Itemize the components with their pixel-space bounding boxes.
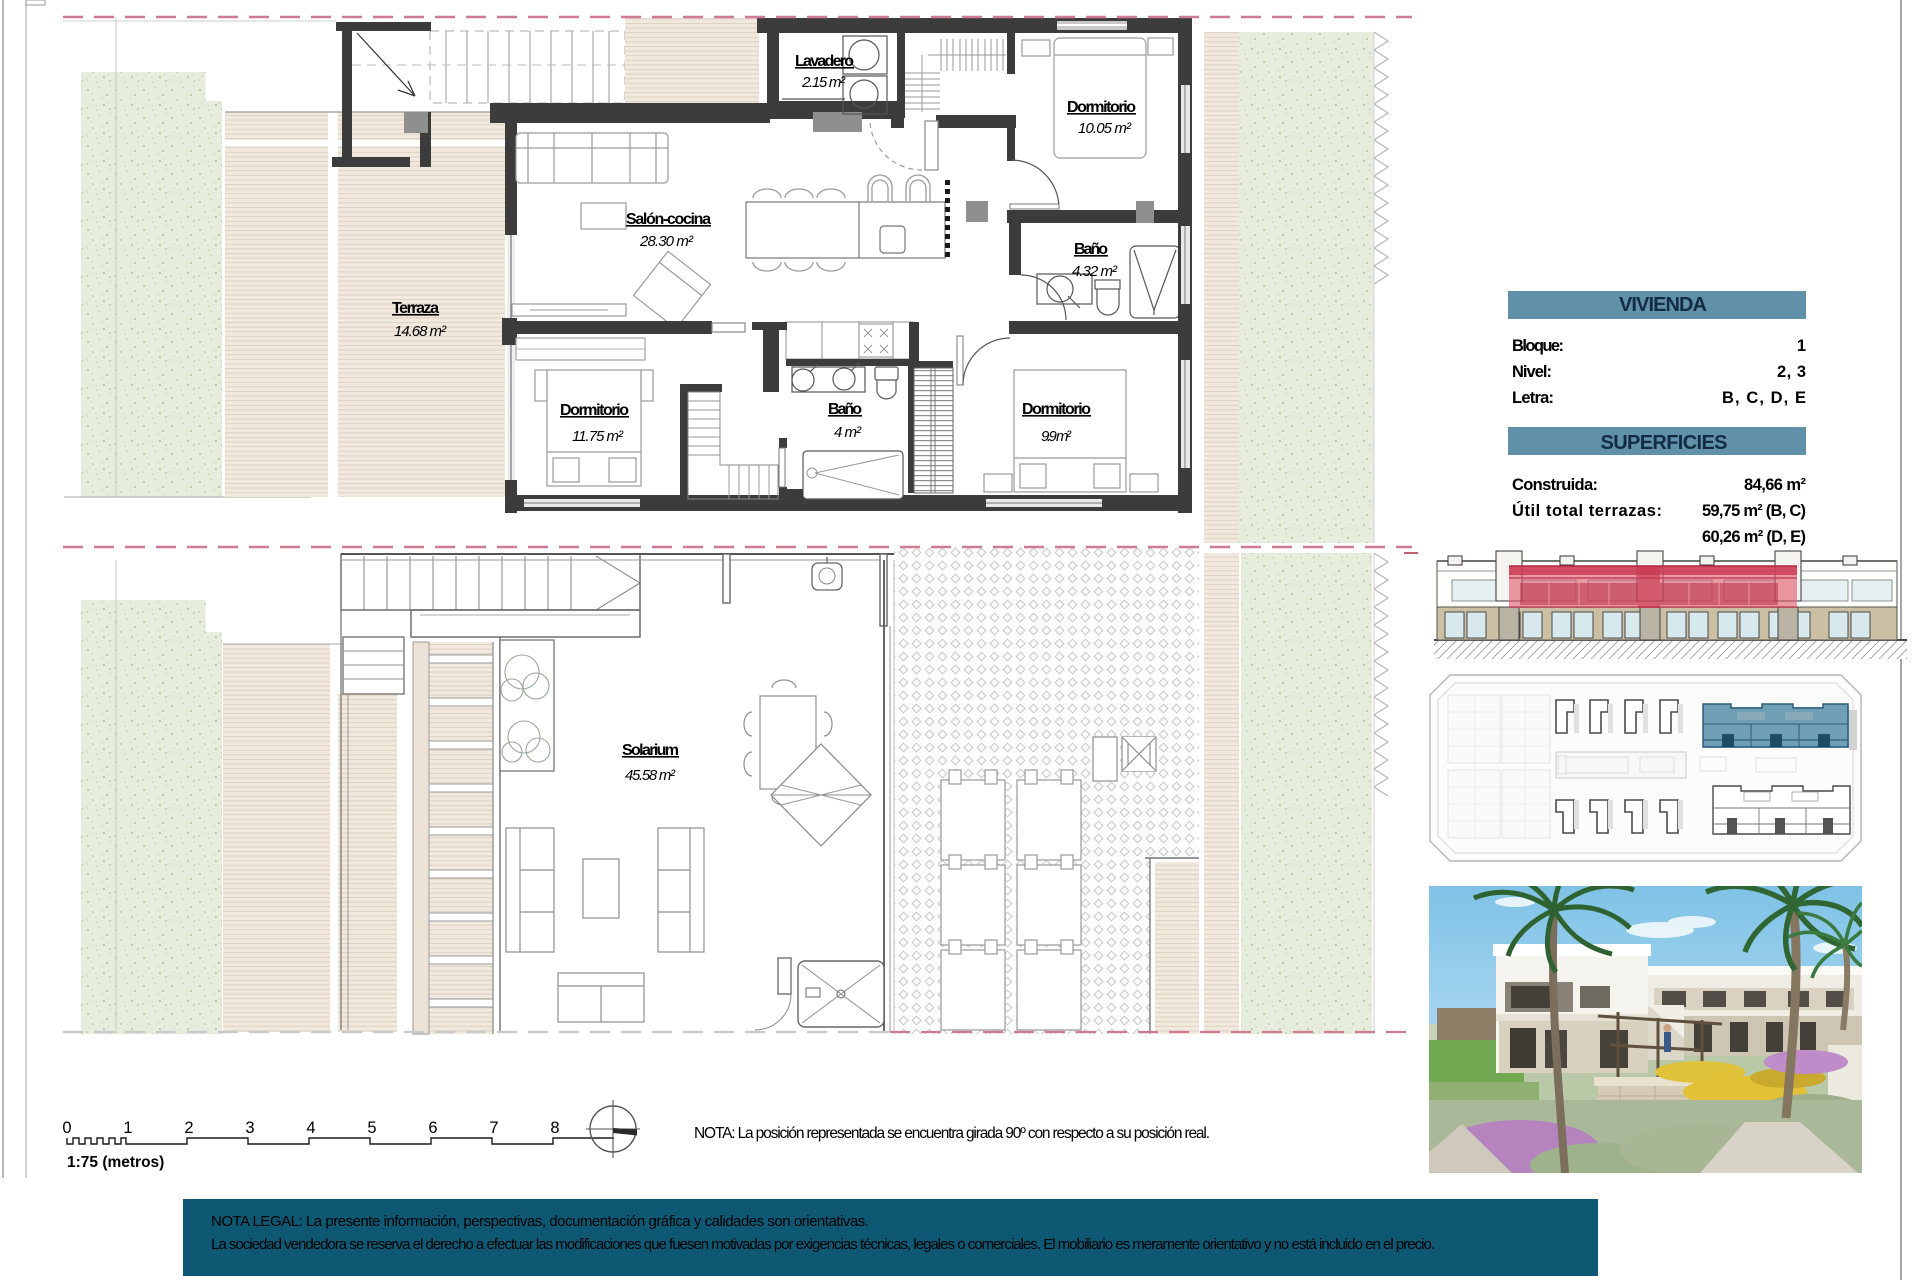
svg-text:60,26 m² (D, E): 60,26 m² (D, E) xyxy=(1702,528,1806,546)
svg-text:SUPERFICIES: SUPERFICIES xyxy=(1601,432,1728,454)
svg-text:4: 4 xyxy=(306,1119,315,1137)
svg-text:2.15 m²: 2.15 m² xyxy=(801,74,846,91)
svg-text:8: 8 xyxy=(550,1119,559,1137)
svg-text:Baño: Baño xyxy=(1074,241,1108,258)
svg-text:Nivel:: Nivel: xyxy=(1512,363,1552,381)
svg-text:Lavadero: Lavadero xyxy=(795,53,854,70)
svg-text:4 m²: 4 m² xyxy=(834,424,862,441)
svg-text:Letra:: Letra: xyxy=(1512,389,1554,407)
svg-text:Dormitorio: Dormitorio xyxy=(560,402,629,419)
svg-text:Bloque:: Bloque: xyxy=(1512,337,1564,355)
svg-text:84,66 m²: 84,66 m² xyxy=(1744,476,1807,494)
svg-text:1: 1 xyxy=(123,1119,132,1137)
svg-text:1: 1 xyxy=(1797,337,1806,355)
svg-text:28.30 m²: 28.30 m² xyxy=(639,233,694,250)
svg-text:11.75 m²: 11.75 m² xyxy=(572,428,624,445)
svg-text:Terraza: Terraza xyxy=(392,300,439,317)
svg-text:Construida:: Construida: xyxy=(1512,476,1598,494)
svg-text:4.32 m²: 4.32 m² xyxy=(1072,263,1118,280)
svg-text:6: 6 xyxy=(428,1119,437,1137)
svg-text:14.68 m²: 14.68 m² xyxy=(394,323,447,340)
svg-text:NOTA LEGAL: La presente inform: NOTA LEGAL: La presente información, per… xyxy=(211,1213,869,1230)
svg-text:Útil total terrazas:: Útil total terrazas: xyxy=(1512,501,1662,520)
svg-text:2, 3: 2, 3 xyxy=(1777,363,1806,381)
svg-text:5: 5 xyxy=(367,1119,376,1137)
svg-text:59,75 m² (B, C): 59,75 m² (B, C) xyxy=(1702,502,1806,520)
svg-text:Solarium: Solarium xyxy=(622,742,679,759)
svg-text:2: 2 xyxy=(184,1119,193,1137)
svg-text:B, C, D, E: B, C, D, E xyxy=(1722,389,1806,407)
svg-text:9.9 m²: 9.9 m² xyxy=(1041,428,1072,445)
svg-text:45.58 m²: 45.58 m² xyxy=(625,767,676,784)
svg-text:Dormitorio: Dormitorio xyxy=(1067,99,1136,116)
svg-text:VIVIENDA: VIVIENDA xyxy=(1619,294,1707,316)
svg-text:Baño: Baño xyxy=(828,401,862,418)
svg-text:La sociedad vendedora se reser: La sociedad vendedora se reserva el dere… xyxy=(211,1236,1435,1253)
svg-text:7: 7 xyxy=(489,1119,498,1137)
svg-text:Salón-cocina: Salón-cocina xyxy=(626,211,711,228)
svg-text:1:75 (metros): 1:75 (metros) xyxy=(67,1154,164,1171)
svg-text:0: 0 xyxy=(62,1119,71,1137)
svg-text:Dormitorio: Dormitorio xyxy=(1022,401,1091,418)
svg-text:3: 3 xyxy=(245,1119,254,1137)
svg-text:10.05 m²: 10.05 m² xyxy=(1078,120,1132,137)
svg-text:NOTA: La posición representada: NOTA: La posición representada se encuen… xyxy=(694,1125,1210,1142)
